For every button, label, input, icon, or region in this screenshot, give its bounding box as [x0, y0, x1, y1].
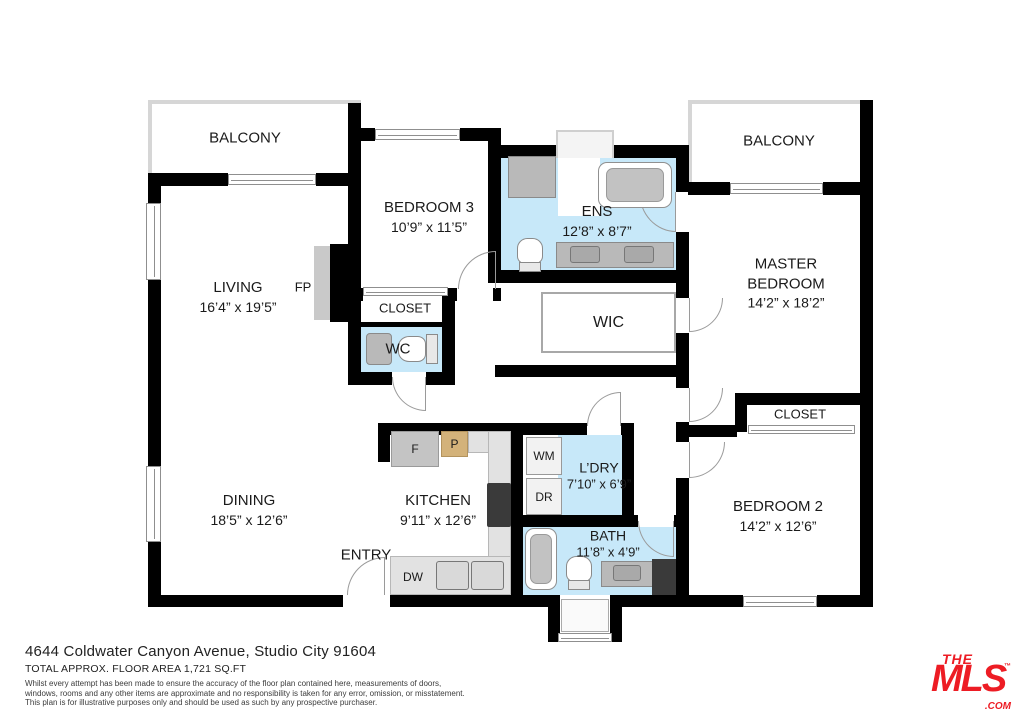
wall	[688, 425, 737, 437]
cabinet	[652, 559, 676, 595]
washer-box: WM	[526, 437, 562, 475]
floor-area: TOTAL APPROX. FLOOR AREA 1,721 SQ.FT	[25, 663, 465, 675]
sliding-door	[363, 287, 448, 296]
room-label-living: LIVING 16’4” x 19’5”	[199, 278, 276, 316]
wall	[493, 288, 501, 301]
toilet-tank	[568, 580, 590, 590]
room-label-bedroom3: BEDROOM 3 10’9” x 11’5”	[384, 198, 474, 236]
room-label-master: MASTER BEDROOM 14’2” x 18’2”	[734, 254, 838, 311]
window	[146, 466, 161, 542]
door-swing	[392, 377, 426, 411]
room-label-closet-bedroom3: CLOSET	[379, 301, 431, 316]
logo-trademark: ™	[1004, 663, 1011, 670]
wall	[688, 595, 743, 607]
window	[146, 203, 161, 280]
room-label-balcony-left: BALCONY	[209, 130, 281, 147]
door-swing	[689, 388, 723, 422]
sliding-door	[748, 425, 855, 434]
disclaimer-line: Whilst every attempt has been made to en…	[25, 679, 465, 689]
sink	[570, 246, 600, 263]
wall	[523, 423, 587, 435]
wall	[148, 280, 161, 466]
dryer-label: DR	[535, 490, 552, 504]
wall	[442, 288, 455, 385]
stove	[487, 483, 511, 527]
room-label-closet-master: CLOSET	[774, 407, 826, 422]
dishwasher-label: DW	[403, 570, 423, 584]
room-label-bedroom2: BEDROOM 2 14’2” x 12’6”	[733, 497, 823, 535]
toilet-tank	[426, 334, 438, 364]
disclaimer-line: windows, rooms and any other items are a…	[25, 689, 465, 699]
wall	[676, 333, 689, 388]
room-label-balcony-right: BALCONY	[743, 133, 815, 150]
room-label-bath: BATH 11’8” x 4’9”	[576, 526, 639, 561]
wall	[676, 232, 689, 298]
room-label-wc: WC	[386, 341, 411, 358]
room-label-wic: WIC	[593, 314, 624, 332]
fridge-label: F	[411, 442, 418, 456]
sliding-door	[228, 174, 316, 185]
wall	[860, 100, 873, 607]
fireplace-surround	[314, 246, 330, 320]
room-label-ens: ENS 12’8” x 8’7”	[562, 202, 631, 240]
toilet	[517, 238, 543, 264]
fridge-box: F	[391, 431, 439, 467]
pantry-box: P	[441, 431, 468, 457]
bathtub-basin	[530, 534, 552, 584]
wall	[737, 393, 872, 405]
door-swing	[458, 251, 496, 289]
fireplace	[330, 244, 356, 322]
door-swing	[689, 298, 723, 332]
window	[558, 633, 612, 642]
property-address: 4644 Coldwater Canyon Avenue, Studio Cit…	[25, 643, 465, 660]
wall	[676, 145, 689, 192]
room-label-laundry: L’DRY 7’10” x 6’9”	[567, 458, 631, 493]
pantry-label: P	[450, 437, 458, 451]
logo-com-text: .COM	[985, 701, 1011, 712]
dryer-box: DR	[526, 478, 562, 515]
wall	[511, 515, 638, 527]
room-label-entry: ENTRY	[341, 547, 392, 564]
ens-niche	[556, 130, 614, 158]
washer-label: WM	[533, 449, 554, 463]
toilet-tank	[519, 262, 541, 272]
kitchen-sink	[471, 561, 504, 590]
wall	[676, 478, 689, 607]
wall	[348, 322, 455, 327]
disclaimer: Whilst every attempt has been made to en…	[25, 679, 465, 708]
wall	[614, 145, 676, 158]
sink	[624, 246, 654, 263]
bathtub-basin	[606, 168, 664, 202]
room-label-kitchen: KITCHEN 9’11” x 12’6”	[400, 491, 476, 529]
wall	[735, 393, 747, 432]
floor-plan: F P WM DR WIC BALCONY BALCONY LIVING 16’…	[0, 0, 1018, 720]
shower-base	[561, 599, 609, 632]
window	[743, 596, 817, 607]
logo-mls-text: MLS	[931, 660, 1005, 698]
wall	[390, 595, 548, 607]
wall	[688, 182, 730, 195]
sliding-door	[730, 183, 823, 194]
room-label-dining: DINING 18’5” x 12’6”	[210, 491, 287, 529]
sink	[613, 565, 641, 581]
wall	[676, 422, 689, 442]
kitchen-sink	[436, 561, 469, 590]
wall	[511, 423, 523, 595]
disclaimer-line: This plan is for illustrative purposes o…	[25, 698, 465, 708]
wall	[148, 595, 343, 607]
door-swing	[689, 442, 725, 478]
wall	[148, 173, 161, 203]
themls-logo: THE MLS ™ .COM	[931, 651, 1011, 715]
room-label-fireplace: FP	[295, 280, 312, 295]
wall	[378, 423, 390, 462]
footer: 4644 Coldwater Canyon Avenue, Studio Cit…	[25, 643, 465, 708]
wall	[495, 365, 689, 377]
wall	[148, 542, 161, 607]
wic-closet-outline: WIC	[541, 292, 676, 353]
shower	[508, 156, 556, 198]
door-swing	[587, 392, 621, 426]
window	[375, 129, 460, 140]
